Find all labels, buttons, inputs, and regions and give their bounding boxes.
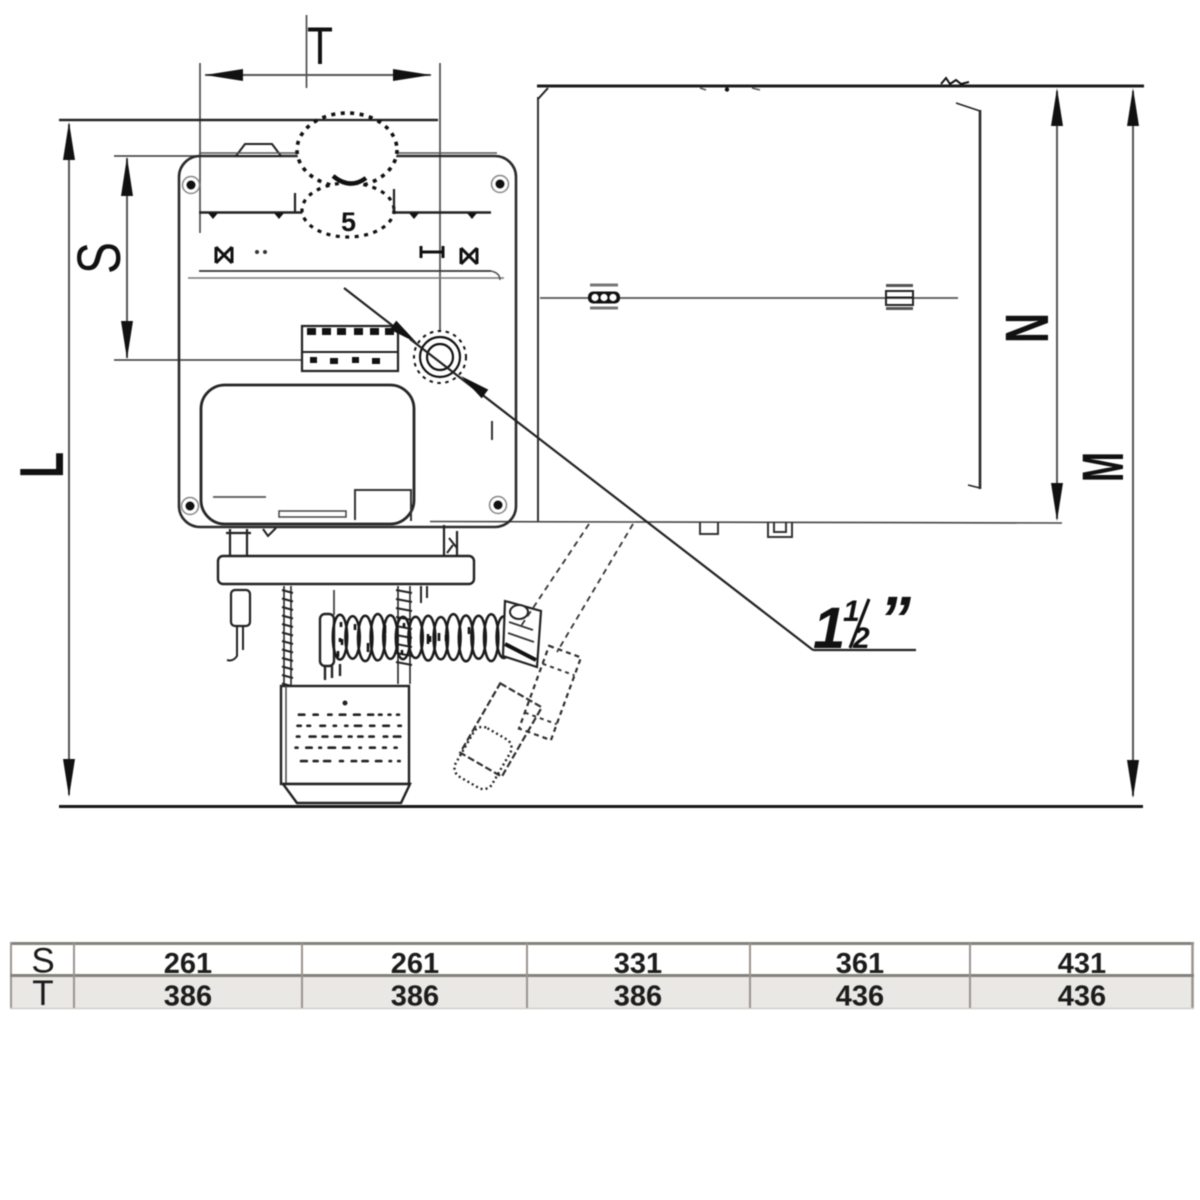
- svg-text:431: 431: [1058, 948, 1106, 980]
- svg-text:”: ”: [879, 583, 911, 655]
- svg-text:M: M: [1071, 452, 1136, 482]
- svg-text:386: 386: [614, 981, 662, 1013]
- svg-text:261: 261: [164, 948, 212, 980]
- svg-text:N: N: [993, 313, 1061, 343]
- svg-text:361: 361: [836, 948, 884, 980]
- svg-text:386: 386: [164, 981, 212, 1013]
- svg-text:T: T: [32, 974, 53, 1013]
- svg-text:436: 436: [836, 981, 884, 1013]
- svg-text:2: 2: [852, 622, 870, 655]
- svg-text:331: 331: [614, 948, 662, 980]
- svg-text:L: L: [8, 452, 77, 478]
- svg-text:S: S: [65, 242, 133, 274]
- svg-text:5: 5: [341, 207, 356, 237]
- svg-text:261: 261: [391, 948, 439, 980]
- svg-text:T: T: [307, 17, 333, 76]
- svg-text:1: 1: [813, 596, 845, 661]
- svg-text:436: 436: [1058, 981, 1106, 1013]
- svg-text:386: 386: [391, 981, 439, 1013]
